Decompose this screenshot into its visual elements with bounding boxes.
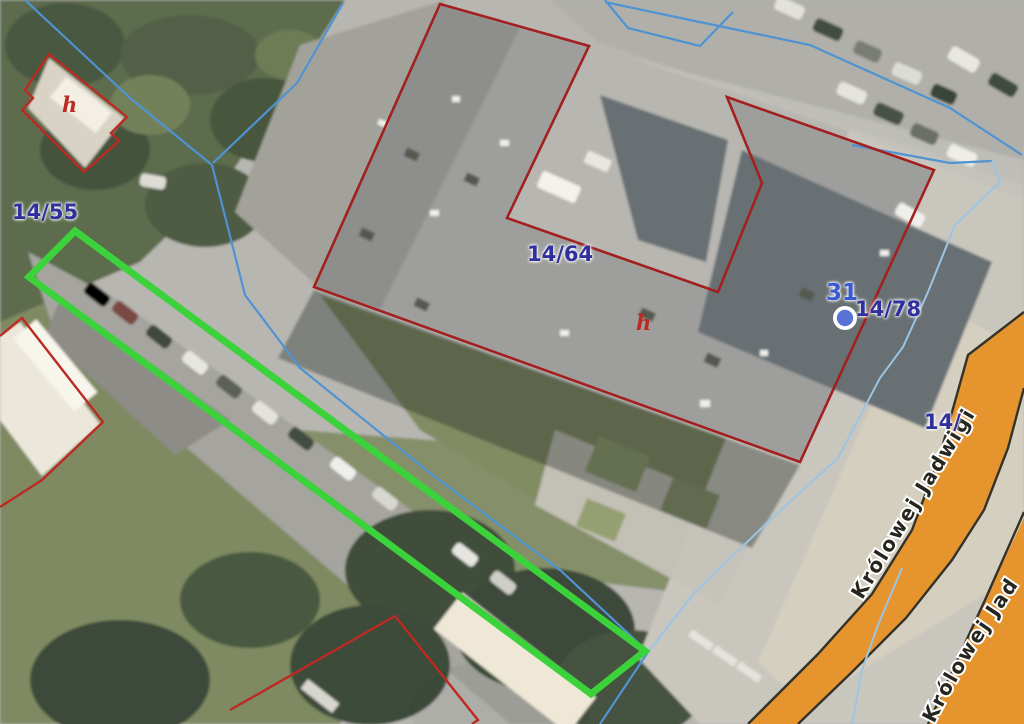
- parcel-label-14-64: 14/64: [527, 242, 593, 266]
- parcel-label-14-partial: 14/: [924, 410, 961, 434]
- parcel-label-14-55: 14/55: [12, 200, 78, 224]
- map-viewport[interactable]: Królowej Jadwigi Królowej Jad 14/55 14/6…: [0, 0, 1024, 724]
- building-mark-h-1: h: [62, 92, 77, 117]
- cadastre-overlay: Królowej Jadwigi Królowej Jad: [0, 0, 1024, 724]
- building-outline-main: [314, 4, 934, 462]
- point-marker[interactable]: [833, 306, 857, 330]
- parcel-label-14-78: 14/78: [855, 297, 921, 321]
- selected-parcel-outline: [29, 231, 645, 694]
- building-outlines: [0, 4, 934, 724]
- road-band-group: [748, 312, 1024, 724]
- building-outline-bottom: [230, 616, 478, 724]
- building-mark-h-2: h: [636, 310, 651, 335]
- building-outline-left: [0, 318, 103, 507]
- marker-label-31: 31: [826, 280, 858, 306]
